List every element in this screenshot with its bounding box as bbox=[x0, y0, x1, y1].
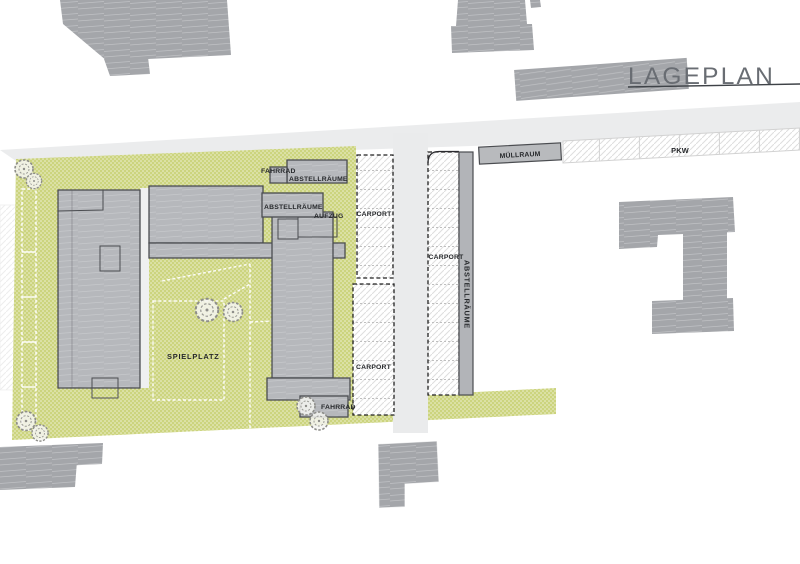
building-gap-path bbox=[140, 188, 149, 388]
site-plan-page: MÜLLRAUM PKW bbox=[0, 0, 800, 564]
building-east-mid-bar bbox=[683, 230, 727, 303]
tree bbox=[32, 425, 48, 441]
main-building-west-wing bbox=[58, 190, 140, 388]
tree bbox=[17, 412, 36, 431]
label-parking: PKW bbox=[671, 146, 689, 155]
building-northwest-annex bbox=[104, 57, 150, 76]
tree bbox=[224, 303, 243, 322]
title-block: LAGEPLAN bbox=[628, 63, 800, 90]
label-storage-north: ABSTELLRÄUME bbox=[289, 175, 348, 183]
label-bike-south: FAHRRAD bbox=[321, 404, 356, 411]
label-bike-north: FAHRRAD bbox=[261, 168, 296, 175]
building-north-body bbox=[451, 0, 534, 53]
label-carport-north: CARPORT bbox=[357, 211, 393, 218]
tree bbox=[26, 173, 41, 188]
tree bbox=[310, 412, 328, 430]
label-storage-east: ABSTELLRÄUME bbox=[463, 260, 472, 329]
site-plan-canvas: MÜLLRAUM PKW bbox=[0, 0, 800, 564]
building-east-bottom-bar bbox=[652, 298, 734, 334]
access-road bbox=[393, 133, 428, 433]
main-building-north-block bbox=[149, 186, 263, 243]
label-storage-mid: ABSTELLRÄUME bbox=[264, 203, 323, 211]
label-carport-south: CARPORT bbox=[356, 364, 392, 371]
label-elevator: AUFZUG bbox=[314, 213, 344, 220]
label-playground: SPIELPLATZ bbox=[167, 352, 220, 361]
label-carport-east: CARPORT bbox=[429, 254, 465, 261]
tree bbox=[196, 299, 219, 322]
tree bbox=[297, 397, 315, 415]
building-north-nub bbox=[530, 0, 541, 8]
waste-room-box: MÜLLRAUM bbox=[479, 143, 562, 164]
building-southwest-lower bbox=[0, 461, 77, 490]
carport-east-stalls bbox=[428, 152, 459, 395]
carport-south-stalls bbox=[353, 284, 394, 415]
